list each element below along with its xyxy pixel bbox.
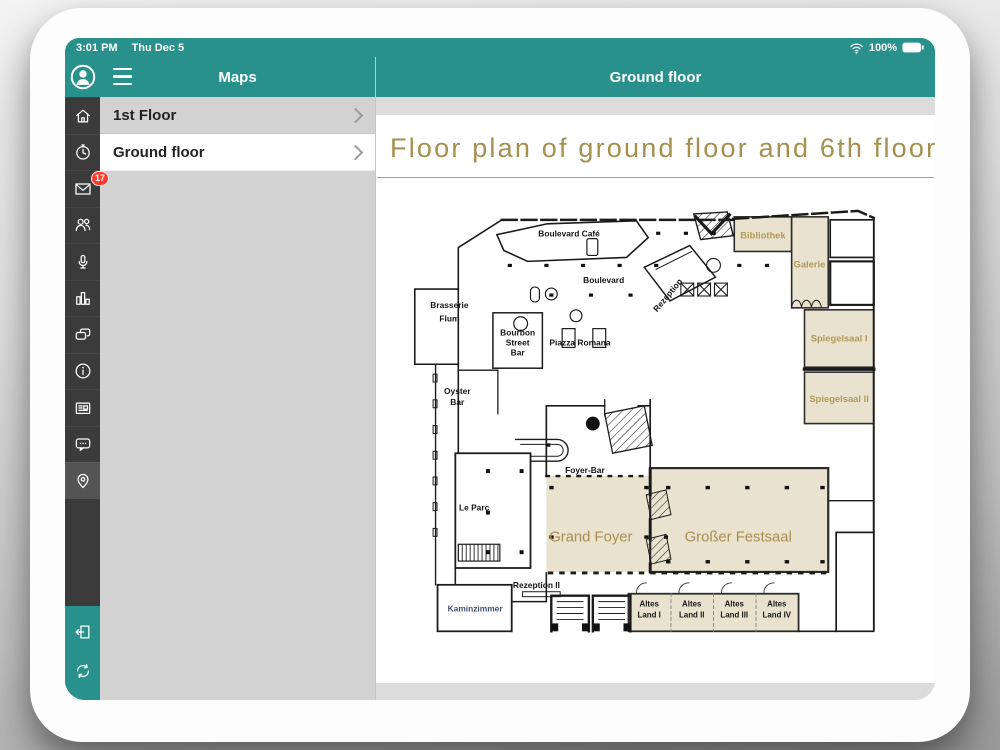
room-label-altes-3a: Altes	[725, 600, 745, 609]
room-label-bar: Bar	[511, 347, 526, 357]
newspaper-icon	[73, 398, 93, 418]
room-label-altes-4b: Land IV	[763, 610, 792, 619]
refresh-icon	[73, 661, 93, 681]
bar-chart-icon	[73, 288, 93, 308]
battery-percent: 100%	[869, 42, 897, 54]
chat-bubbles-icon	[73, 325, 93, 345]
message-dots-icon	[73, 434, 93, 454]
list-item-ground-floor[interactable]: Ground floor	[100, 134, 375, 171]
room-label-altes-4a: Altes	[767, 600, 787, 609]
avatar-icon	[70, 64, 96, 90]
room-label-galerie: Galerie	[794, 258, 826, 269]
menu-icon[interactable]	[113, 68, 132, 85]
maps-panel-header: Maps	[100, 57, 375, 97]
list-item-label: 1st Floor	[113, 107, 176, 124]
room-label-altes-1b: Land I	[638, 610, 661, 619]
sidebar-item-info[interactable]	[65, 353, 100, 390]
room-label-altes-2a: Altes	[682, 600, 702, 609]
sidebar-item-messages[interactable]	[65, 426, 100, 463]
content-title: Ground floor	[610, 69, 702, 86]
room-label-altes-3b: Land III	[720, 610, 748, 619]
room-label-le-parc: Le Parc	[459, 503, 490, 513]
panel-title: Maps	[218, 69, 256, 86]
chevron-right-icon	[348, 144, 364, 160]
room-label-bourbon: Bourbon	[500, 328, 535, 338]
sidebar: 17	[65, 57, 100, 700]
wifi-icon	[849, 42, 864, 54]
location-pin-icon	[73, 471, 93, 491]
sidebar-item-maps[interactable]	[65, 462, 100, 499]
room-label-grosser-festsaal: Großer Festsaal	[685, 529, 792, 545]
sidebar-item-mail[interactable]: 17	[65, 170, 100, 207]
app-body: 17	[65, 57, 935, 700]
maps-list-panel: Maps 1st Floor Ground floor	[100, 57, 375, 700]
room-label-oyster: Oyster	[444, 386, 471, 396]
mail-icon	[73, 179, 93, 199]
mail-badge: 17	[91, 171, 109, 186]
content-header: Ground floor	[376, 57, 935, 97]
home-icon	[73, 106, 93, 126]
sidebar-item-microphone[interactable]	[65, 243, 100, 280]
page-title: Floor plan of ground floor and 6th floor	[376, 115, 935, 177]
sidebar-spacer	[65, 499, 100, 607]
content-scroll[interactable]: Floor plan of ground floor and 6th floor	[376, 97, 935, 700]
room-label-rezeption-2: Rezeption II	[513, 580, 560, 590]
status-time: 3:01 PM	[76, 42, 118, 54]
info-icon	[73, 361, 93, 381]
room-label-kaminzimmer: Kaminzimmer	[448, 604, 504, 614]
microphone-icon	[73, 252, 93, 272]
sidebar-item-statistics[interactable]	[65, 280, 100, 317]
chevron-right-icon	[348, 107, 364, 123]
status-date: Thu Dec 5	[132, 42, 185, 54]
room-label-altes-2b: Land II	[679, 610, 704, 619]
room-label-street: Street	[506, 337, 530, 347]
sidebar-item-profile[interactable]	[65, 57, 100, 97]
room-label-altes-1a: Altes	[640, 600, 660, 609]
logout-icon	[73, 622, 93, 642]
sidebar-item-home[interactable]	[65, 97, 100, 134]
sidebar-item-schedule[interactable]	[65, 134, 100, 171]
room-label-piazza-romana: Piazza Romana	[549, 337, 610, 347]
room-label-boulevard: Boulevard	[583, 275, 624, 285]
battery-icon	[902, 42, 924, 53]
app-screen: 3:01 PM Thu Dec 5 100%	[65, 38, 935, 700]
clock-icon	[73, 142, 93, 162]
room-label-bibliothek: Bibliothek	[740, 230, 786, 241]
sidebar-item-news[interactable]	[65, 389, 100, 426]
room-label-spiegelsaal-2: Spiegelsaal II	[809, 393, 868, 404]
list-item-label: Ground floor	[113, 144, 205, 161]
sidebar-item-conversations[interactable]	[65, 316, 100, 353]
sidebar-item-refresh[interactable]	[65, 651, 100, 690]
tablet-frame: 3:01 PM Thu Dec 5 100%	[30, 8, 970, 742]
room-label-boulevard-cafe: Boulevard Café	[538, 229, 600, 239]
room-label-brasserie: Brasserie	[430, 300, 469, 310]
list-item-1st-floor[interactable]: 1st Floor	[100, 97, 375, 134]
room-label-grand-foyer: Grand Foyer	[549, 529, 632, 545]
status-bar: 3:01 PM Thu Dec 5 100%	[65, 38, 935, 57]
room-label-flum: Flum	[439, 314, 459, 324]
content-area: Ground floor Floor plan of ground floor …	[375, 57, 935, 700]
room-label-spiegelsaal-1: Spiegelsaal I	[811, 332, 868, 343]
sidebar-bottom	[65, 606, 100, 700]
floor-plan-image: Boulevard Café Boulevard Brasserie Flum …	[398, 204, 935, 659]
room-label-foyer-bar: Foyer-Bar	[565, 465, 605, 475]
title-divider	[377, 177, 934, 178]
people-icon	[73, 215, 93, 235]
sidebar-item-attendees[interactable]	[65, 207, 100, 244]
floor-plan-page: Floor plan of ground floor and 6th floor	[376, 115, 935, 683]
room-label-oyster-bar: Bar	[450, 397, 465, 407]
sidebar-item-logout[interactable]	[65, 612, 100, 651]
